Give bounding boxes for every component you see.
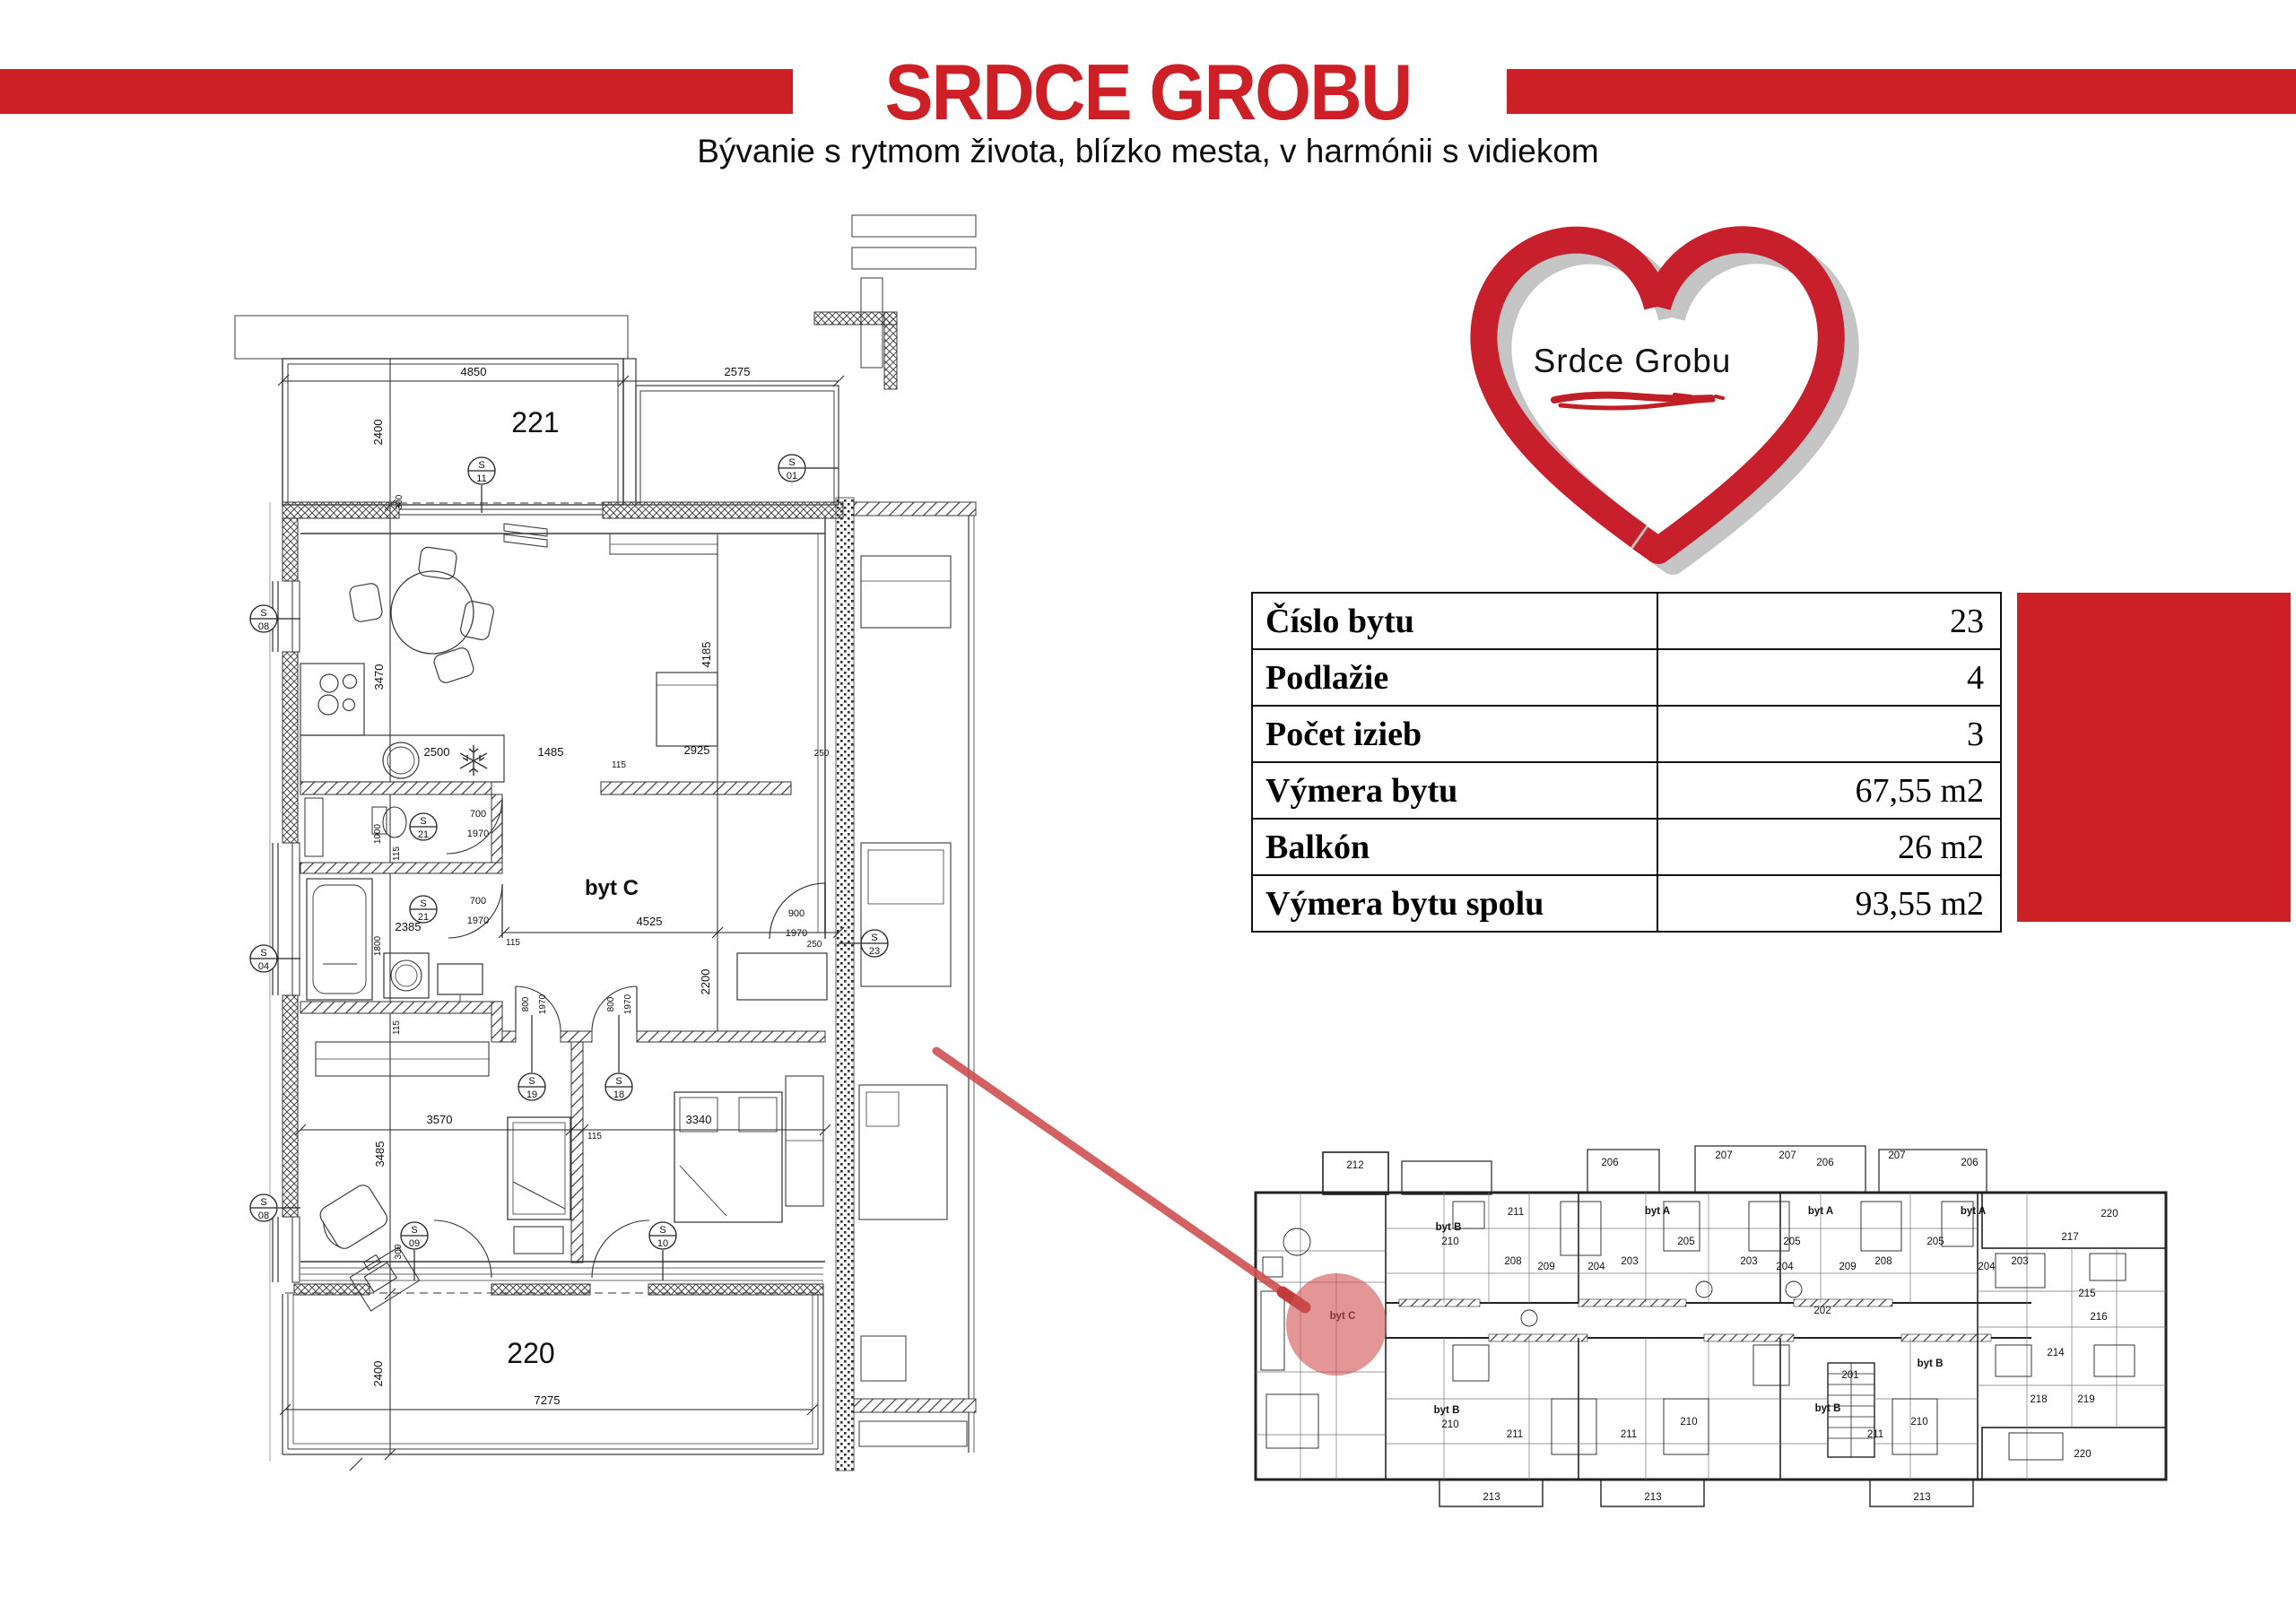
svg-text:S: S — [420, 816, 426, 827]
spec-label: Výmera bytu — [1252, 762, 1657, 819]
svg-text:S: S — [260, 608, 266, 619]
dimension-label: 1970 — [623, 994, 633, 1014]
logo-text: Srdce Grobu — [1534, 343, 1732, 379]
building-plan-label: 213 — [1483, 1492, 1500, 1503]
dimension-label: 250 — [814, 749, 830, 759]
dimension-label: 3340 — [686, 1113, 712, 1126]
building-plan-label: 203 — [1621, 1256, 1638, 1267]
section-marker: S18 — [605, 1015, 632, 1100]
dimension-label: 7275 — [535, 1393, 561, 1407]
floor-plan-dim-labels: 4850257524002213003470418525001485115292… — [371, 365, 830, 1407]
spec-table-body: Číslo bytu23Podlažie4Počet izieb3Výmera … — [1252, 593, 2001, 932]
exterior-wall-left — [270, 502, 300, 1462]
dimension-label: 2400 — [371, 420, 385, 446]
dimension-label: 221 — [511, 406, 559, 438]
dimension-label: 1970 — [467, 829, 489, 839]
spec-label: Číslo bytu — [1252, 593, 1657, 649]
heart-logo: Srdce Grobu — [1448, 208, 1870, 576]
building-plan-label: 207 — [1779, 1150, 1796, 1161]
building-plan-label: 203 — [2011, 1256, 2028, 1267]
spec-value: 23 — [1657, 593, 2002, 649]
section-marker: S21 — [410, 896, 437, 923]
dimension-label: 800 — [606, 996, 616, 1011]
dimension-label: 115 — [612, 760, 626, 770]
building-plan-label: 205 — [1783, 1237, 1800, 1247]
svg-text:19: 19 — [526, 1089, 537, 1100]
section-marker: S10 — [649, 1222, 676, 1280]
exterior-wall-top — [283, 502, 843, 547]
apartment-floor-plan: 4850257524002213003470418525001485115292… — [170, 206, 978, 1533]
building-plan-label: 206 — [1961, 1158, 1978, 1168]
building-plan-label: byt B — [1434, 1405, 1460, 1416]
fridge-snowflake-icon — [460, 745, 487, 776]
building-plan-label: 202 — [1813, 1306, 1831, 1316]
dimension-label: 2200 — [699, 969, 712, 995]
neighbour-apartment-strip — [836, 215, 976, 1471]
building-plan-label: 209 — [1537, 1262, 1554, 1272]
building-plan-label: 211 — [1508, 1207, 1524, 1218]
svg-text:S: S — [260, 948, 266, 959]
building-plan-label: 208 — [1874, 1256, 1892, 1267]
building-plan-label: 205 — [1926, 1237, 1944, 1247]
spec-row: Číslo bytu23 — [1252, 593, 2001, 649]
building-plan-label: 209 — [1839, 1262, 1856, 1272]
spec-value: 3 — [1657, 706, 2002, 762]
building-plan-label: 210 — [1441, 1419, 1458, 1430]
spec-row: Výmera bytu67,55 m2 — [1252, 762, 2001, 819]
dimension-label: 2925 — [684, 743, 710, 757]
dimension-label: 115 — [587, 1132, 602, 1141]
svg-text:S: S — [659, 1225, 665, 1236]
building-plan-label: 201 — [1841, 1370, 1858, 1381]
dimension-label: 800 — [521, 996, 531, 1011]
bedroom-2 — [674, 1076, 823, 1222]
building-plan-label: 204 — [1978, 1262, 1996, 1272]
building-plan-label: byt B — [1918, 1358, 1944, 1369]
building-plan-label: 218 — [2030, 1394, 2047, 1405]
dimension-label: 4525 — [637, 915, 663, 928]
bedroom-1 — [295, 1042, 831, 1311]
building-plan-label: 220 — [2100, 1209, 2118, 1219]
building-plan-label: 206 — [1816, 1158, 1833, 1168]
dimension-label: 4850 — [461, 365, 487, 378]
svg-text:01: 01 — [787, 471, 797, 482]
dimension-label: byt C — [585, 876, 639, 900]
balcony-220 — [280, 1294, 823, 1471]
spec-label: Podlažie — [1252, 649, 1657, 706]
building-plan-label: 219 — [2077, 1394, 2094, 1405]
building-plan-label: 204 — [1776, 1262, 1794, 1272]
dimension-label: 300 — [395, 494, 404, 509]
dimension-label: 1000 — [373, 823, 383, 844]
spec-label: Balkón — [1252, 819, 1657, 875]
building-plan-label: 213 — [1644, 1492, 1661, 1503]
building-plan-label: 216 — [2090, 1312, 2107, 1323]
building-plan-label: 205 — [1677, 1237, 1694, 1247]
dimension-label: 3570 — [427, 1113, 453, 1126]
building-plan-label: byt B — [1815, 1403, 1841, 1414]
spec-value: 67,55 m2 — [1657, 762, 2002, 819]
spec-value: 26 m2 — [1657, 819, 2002, 875]
svg-text:09: 09 — [409, 1238, 420, 1249]
dimension-label: 1970 — [786, 928, 807, 939]
svg-text:S: S — [788, 457, 795, 468]
svg-text:S: S — [260, 1197, 266, 1208]
dimension-label: 1485 — [538, 745, 564, 759]
dimension-label: 3470 — [372, 664, 386, 690]
building-plan-label: 207 — [1888, 1150, 1905, 1161]
building-plan-label: byt A — [1808, 1206, 1833, 1217]
building-plan-label: 212 — [1346, 1160, 1363, 1171]
dimension-label: 2400 — [371, 1361, 385, 1387]
svg-text:S: S — [528, 1076, 535, 1087]
svg-text:08: 08 — [258, 1211, 269, 1221]
building-plan-label: 206 — [1601, 1158, 1618, 1168]
dimension-label: 2500 — [424, 745, 450, 759]
dimension-label: 1970 — [538, 994, 548, 1014]
dimension-label: 115 — [506, 938, 520, 948]
svg-text:21: 21 — [418, 912, 429, 923]
logo-scribble-underline — [1554, 395, 1723, 408]
apartment-spec-table: Číslo bytu23Podlažie4Počet izieb3Výmera … — [1251, 592, 2002, 933]
dimension-label: 1800 — [373, 935, 383, 956]
building-plan-label: 217 — [2061, 1232, 2078, 1243]
dimension-label: 4185 — [700, 642, 713, 668]
dimension-label: 300 — [394, 1244, 404, 1259]
building-plan-label: byt B — [1436, 1222, 1462, 1233]
svg-text:04: 04 — [258, 961, 269, 972]
accent-red-block — [2017, 593, 2291, 922]
section-marker: S21 — [410, 813, 437, 840]
building-plan-label: 211 — [1621, 1429, 1637, 1440]
building-plan-label: 207 — [1715, 1150, 1732, 1161]
building-plan-label: 213 — [1913, 1492, 1930, 1503]
building-plan-label: 220 — [2074, 1449, 2091, 1460]
kitchen — [300, 664, 504, 782]
building-plan-label: 210 — [1680, 1417, 1697, 1428]
spec-row: Balkón26 m2 — [1252, 819, 2001, 875]
dimension-label: 115 — [392, 1020, 402, 1035]
dimension-label: 700 — [470, 896, 486, 907]
svg-text:S: S — [478, 460, 484, 471]
dimension-label: 2575 — [725, 365, 751, 378]
svg-text:08: 08 — [258, 621, 269, 632]
svg-text:23: 23 — [869, 946, 880, 957]
building-plan-label: 214 — [2047, 1348, 2065, 1358]
building-plan-label: 203 — [1740, 1256, 1757, 1267]
building-plan-label: 208 — [1504, 1256, 1521, 1267]
dimension-label: 700 — [470, 809, 486, 820]
building-plan-label: 211 — [1507, 1429, 1523, 1440]
section-marker: S01 — [778, 455, 839, 482]
svg-text:S: S — [420, 898, 426, 909]
building-plan-label: byt A — [1645, 1206, 1670, 1217]
building-plan-label: 215 — [2078, 1289, 2095, 1299]
highlight-pointer-line — [936, 1051, 1302, 1306]
dimension-label: 220 — [507, 1337, 554, 1369]
svg-text:S: S — [411, 1225, 417, 1236]
dimension-label: 115 — [392, 846, 402, 861]
building-plan-label: byt C — [1330, 1311, 1356, 1322]
building-overview-plan: 212207207207206206206220byt B210211byt A… — [1251, 1137, 2184, 1523]
dimension-label: 900 — [788, 908, 804, 919]
spec-row: Podlažie4 — [1252, 649, 2001, 706]
building-plan-label: 210 — [1441, 1237, 1458, 1247]
section-marker: S19 — [518, 1015, 545, 1100]
building-plan-label: 211 — [1867, 1429, 1883, 1440]
svg-text:18: 18 — [613, 1089, 624, 1100]
page-title: SRDCE GROBU — [0, 47, 2296, 138]
spec-value: 93,55 m2 — [1657, 875, 2002, 932]
spec-label: Výmera bytu spolu — [1252, 875, 1657, 932]
spec-row: Výmera bytu spolu93,55 m2 — [1252, 875, 2001, 932]
section-marker: S09 — [401, 1222, 428, 1280]
dimension-label: 3485 — [373, 1141, 387, 1167]
svg-text:10: 10 — [657, 1238, 668, 1249]
dimension-label: 250 — [807, 940, 822, 950]
page: { "header": { "title": "SRDCE GROBU", "s… — [0, 0, 2296, 1623]
building-plan-label: 204 — [1587, 1262, 1605, 1272]
svg-text:S: S — [615, 1076, 622, 1087]
spec-row: Počet izieb3 — [1252, 706, 2001, 762]
building-plan-label: 210 — [1910, 1417, 1927, 1428]
building-plan-label: byt A — [1961, 1206, 1986, 1217]
building-plan-labels: 212207207207206206206220byt B210211byt A… — [1330, 1150, 2118, 1503]
dimension-label: 1970 — [467, 916, 489, 926]
spec-label: Počet izieb — [1252, 706, 1657, 762]
svg-text:S: S — [871, 933, 877, 943]
svg-text:21: 21 — [418, 829, 429, 840]
page-subtitle: Bývanie s rytmom života, blízko mesta, v… — [0, 133, 2296, 170]
spec-value: 4 — [1657, 649, 2002, 706]
svg-text:11: 11 — [476, 473, 486, 484]
exterior-wall-bottom — [285, 1220, 825, 1295]
